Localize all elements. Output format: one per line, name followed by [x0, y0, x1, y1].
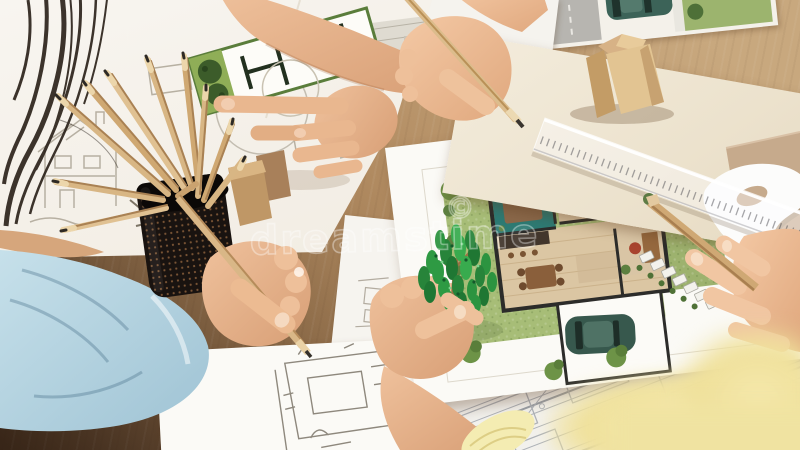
wooden-model-blocks	[570, 34, 674, 124]
fingernail	[221, 98, 235, 110]
fist-holding-tree	[370, 224, 543, 450]
photo-architects-workspace: © dreamstime	[0, 0, 800, 450]
yellow-blur-bottom	[610, 404, 800, 450]
wooden-blocks	[228, 150, 291, 226]
hand-holding-pencil-top	[395, 0, 548, 127]
